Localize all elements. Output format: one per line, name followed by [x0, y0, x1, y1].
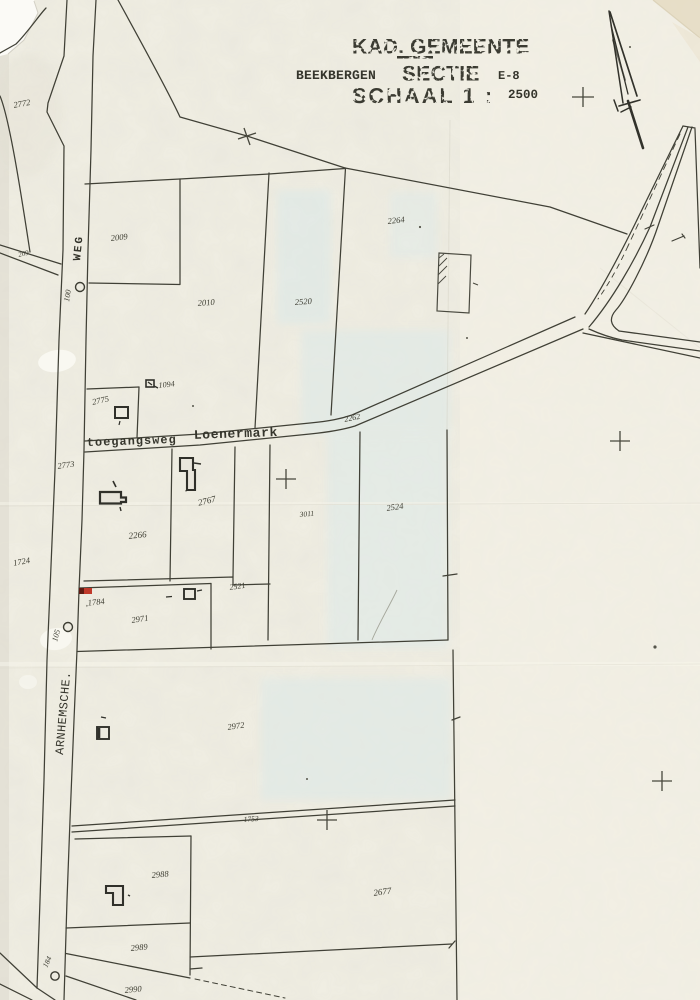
svg-text:SECTIE: SECTIE [402, 63, 480, 86]
svg-text:2009: 2009 [110, 231, 129, 243]
svg-text:BEEKBERGEN: BEEKBERGEN [296, 68, 376, 83]
svg-text:1753: 1753 [243, 814, 259, 824]
svg-text:1094: 1094 [158, 379, 175, 390]
svg-text:3011: 3011 [298, 509, 314, 519]
svg-text:2988: 2988 [151, 868, 170, 880]
svg-text:2010: 2010 [197, 297, 215, 308]
svg-text:E-8: E-8 [498, 69, 520, 83]
svg-text:2989: 2989 [130, 941, 149, 953]
svg-text:2520: 2520 [294, 296, 312, 307]
svg-text:2500: 2500 [508, 88, 538, 102]
svg-text:2266: 2266 [128, 529, 147, 541]
svg-text:SCHAAL 1 :: SCHAAL 1 : [352, 84, 494, 108]
svg-text:Loenermark: Loenermark [194, 425, 278, 443]
svg-text:,1784: ,1784 [85, 596, 106, 608]
svg-text:KAD. GEMEENTE: KAD. GEMEENTE [352, 36, 530, 59]
svg-text:2990: 2990 [124, 983, 143, 995]
svg-text:2264: 2264 [387, 214, 406, 226]
